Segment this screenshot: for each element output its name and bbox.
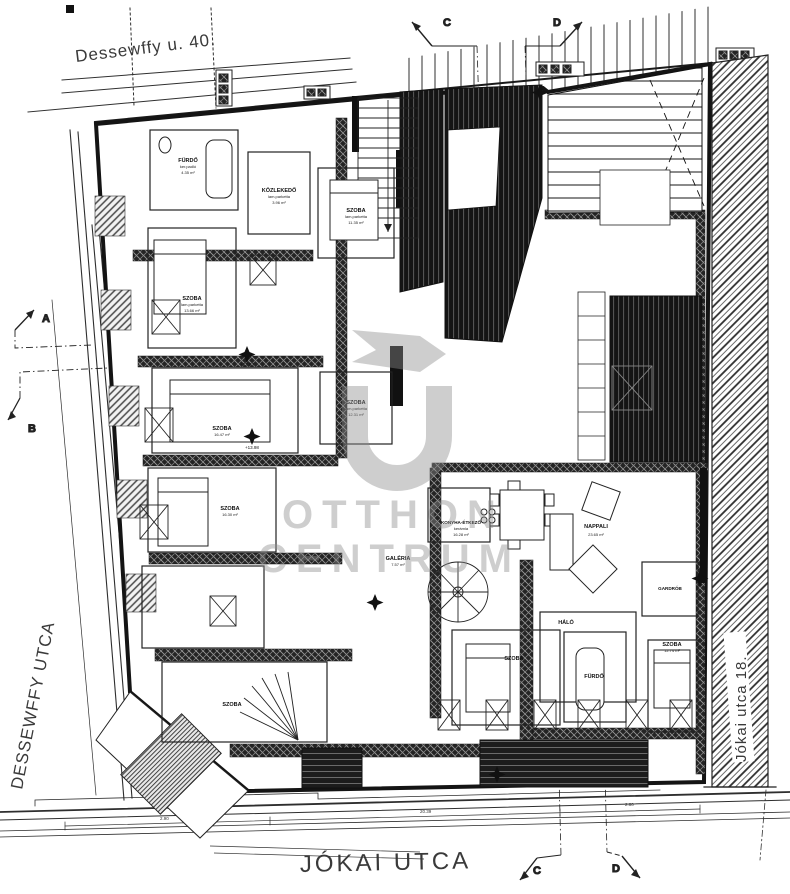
- svg-text:C: C: [533, 865, 541, 877]
- bathtub: [206, 140, 232, 198]
- sofa: [550, 514, 573, 570]
- bed: [600, 170, 670, 225]
- dark-roof-left: [400, 89, 443, 292]
- room-label: GARDRÓB: [658, 584, 682, 591]
- street-label-bottom: JÓKAI UTCA: [300, 847, 472, 878]
- room-label: HÁLÓ: [558, 618, 574, 626]
- bed: [466, 644, 510, 712]
- room-label: KÖZLEKEDŐ: [262, 187, 297, 194]
- deck-strip-2: [480, 740, 648, 787]
- svg-text:+23.83: +23.83: [240, 362, 254, 367]
- svg-text:lam.parketta: lam.parketta: [345, 214, 368, 219]
- svg-text:4.35 m²: 4.35 m²: [181, 170, 195, 175]
- room-label: FÜRDŐ: [584, 673, 604, 680]
- svg-text:11.35 m²: 11.35 m²: [348, 220, 364, 225]
- svg-text:16.30 m²: 16.30 m²: [222, 512, 238, 517]
- svg-text:23.65 m²: 23.65 m²: [588, 532, 604, 537]
- dim-bottom-1: 2.90: [160, 816, 169, 821]
- svg-text:D: D: [553, 17, 561, 29]
- dim-bottom-3: 2.80: [625, 802, 634, 807]
- street-label-left: DESSEWFFY UTCA: [7, 620, 58, 791]
- svg-text:C: C: [443, 17, 451, 29]
- room-label: SZOBA: [222, 702, 241, 708]
- svg-text:16.47 m²: 16.47 m²: [214, 432, 230, 437]
- dim-bottom-2: 20.39: [420, 809, 432, 814]
- building-plan: +23.83 +13.98 FÜRDŐ ker.padló 4.35 m² SZ…: [95, 64, 710, 859]
- floor-plan-drawing: 2.90 20.39 2.80 Dessewffy u. 40. DESSEWF…: [0, 0, 790, 894]
- watermark-text-1: OTTHON: [282, 493, 505, 537]
- svg-text:lam.parketta: lam.parketta: [268, 194, 291, 199]
- dining-table: [500, 490, 544, 540]
- svg-text:3.96 m²: 3.96 m²: [272, 200, 286, 205]
- svg-text:A: A: [42, 313, 50, 325]
- room-label: SZOBA: [504, 656, 523, 662]
- watermark-text-2: CENTRUM: [258, 537, 521, 581]
- bed: [654, 650, 690, 708]
- section-marker-b-left: B: [8, 368, 108, 435]
- toilet: [159, 137, 171, 153]
- svg-text:D: D: [612, 863, 620, 875]
- bottom-street-lines: [0, 790, 790, 837]
- dark-roof-notch: [448, 127, 500, 210]
- room-label: FÜRDŐ: [178, 157, 198, 164]
- street-label-right: Jókai utca 18.: [733, 655, 750, 762]
- terrace-grid: [578, 292, 605, 460]
- svg-text:ker.padló: ker.padló: [180, 164, 197, 169]
- svg-text:12.74 m²: 12.74 m²: [664, 648, 680, 653]
- deck-strip-1: [302, 748, 362, 788]
- svg-text:B: B: [28, 423, 36, 435]
- room-label: NAPPALI: [584, 524, 608, 530]
- street-label-top: Dessewffy u. 40.: [74, 30, 217, 66]
- svg-text:lam.parketta: lam.parketta: [181, 302, 204, 307]
- svg-text:+13.98: +13.98: [245, 445, 259, 450]
- svg-text:13.66 m²: 13.66 m²: [184, 308, 200, 313]
- floor-plan-page: 2.90 20.39 2.80 Dessewffy u. 40. DESSEWF…: [0, 0, 790, 894]
